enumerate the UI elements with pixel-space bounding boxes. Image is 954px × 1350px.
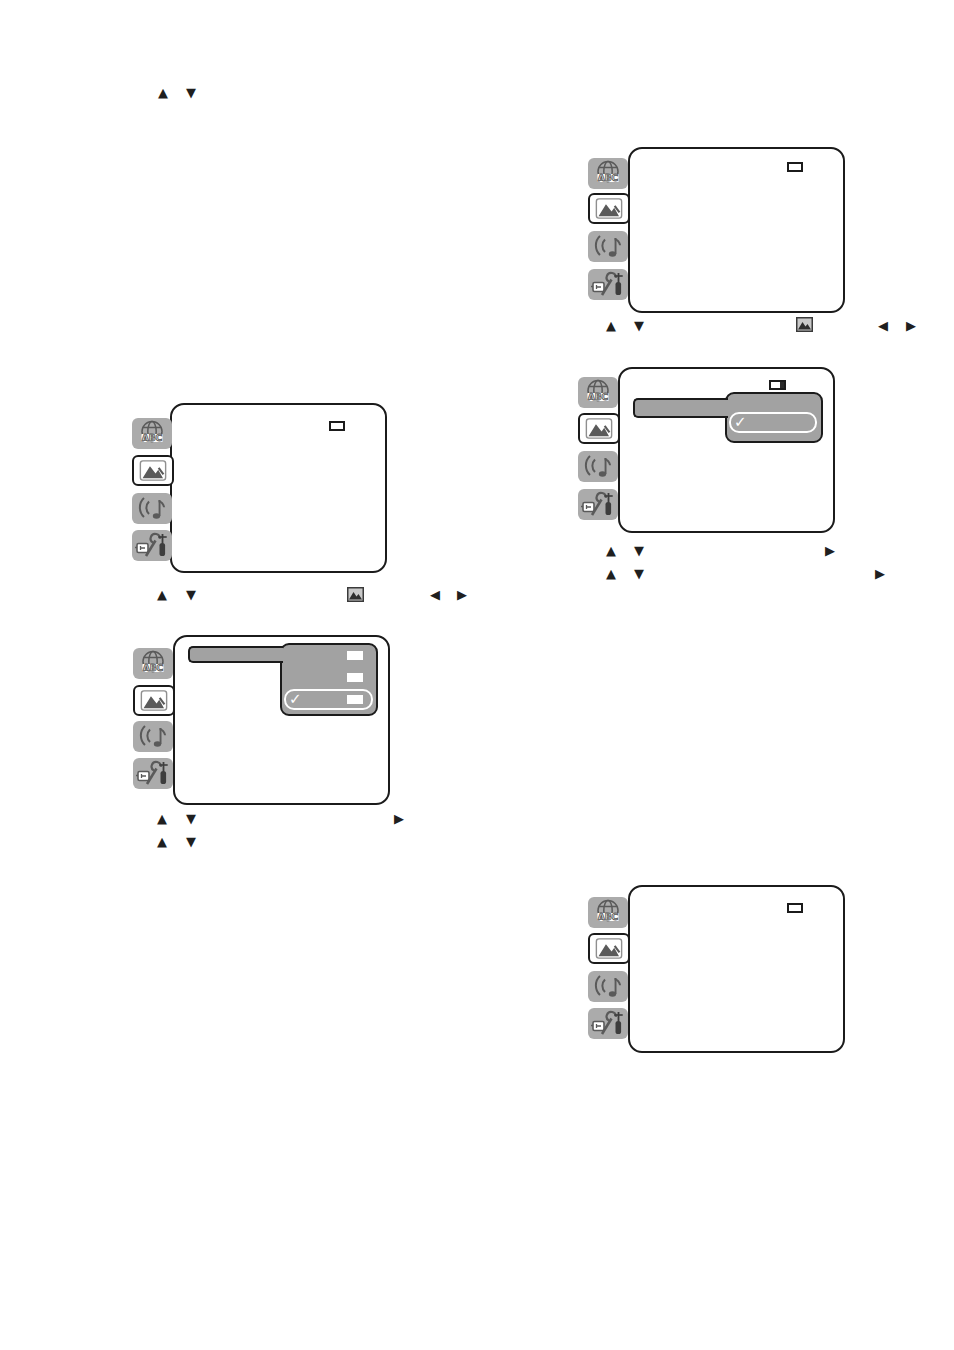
picture-icon (134, 457, 172, 484)
up-arrow-key-icon: ▲ (157, 835, 167, 848)
osd-menu-figure-left-middle: ✓ (133, 635, 393, 809)
up-arrow-key-icon: ▲ (157, 812, 167, 825)
setup-icon (133, 758, 173, 789)
menu-panel (628, 147, 845, 313)
up-arrow-key-icon: ▲ (158, 86, 168, 99)
tab-sound (133, 721, 173, 752)
language-icon (132, 418, 172, 449)
right-arrow-key-icon: ▶ (457, 588, 467, 601)
tab-picture-selected (133, 685, 175, 716)
checkmark-icon: ✓ (734, 415, 747, 430)
up-arrow-key-icon: ▲ (606, 567, 616, 580)
left-arrow-key-icon: ◀ (430, 588, 440, 601)
submenu-option-box (347, 673, 363, 682)
setup-icon (578, 489, 618, 520)
tab-setup (588, 269, 628, 300)
tab-picture-selected (588, 933, 630, 964)
language-icon (588, 158, 628, 189)
tab-setup (588, 1008, 628, 1039)
picture-icon (590, 195, 628, 222)
down-arrow-key-icon: ▼ (634, 544, 644, 557)
menu-indicator (329, 421, 345, 431)
osd-menu-figure-right-middle: ✓ (578, 367, 838, 537)
picture-icon (580, 415, 618, 442)
language-icon (578, 377, 618, 408)
menu-indicator (787, 903, 803, 913)
tab-setup (132, 530, 172, 561)
tab-sound (588, 971, 628, 1002)
tab-language (133, 648, 173, 679)
tab-language (578, 377, 618, 408)
highlighted-menu-row (188, 646, 283, 663)
left-arrow-key-icon: ◀ (878, 319, 888, 332)
tab-language (132, 418, 172, 449)
up-arrow-key-icon: ▲ (606, 544, 616, 557)
sound-icon (588, 971, 628, 1002)
picture-icon (135, 687, 173, 714)
sound-icon (588, 231, 628, 262)
up-arrow-key-icon: ▲ (157, 588, 167, 601)
tab-picture-selected (578, 413, 620, 444)
down-arrow-key-icon: ▼ (186, 588, 196, 601)
menu-indicator-partial (769, 380, 786, 390)
menu-indicator (787, 162, 803, 172)
indicator-fill (780, 382, 784, 388)
submenu-option-box (347, 651, 363, 660)
right-arrow-key-icon: ▶ (394, 812, 404, 825)
language-icon (133, 648, 173, 679)
tab-sound (132, 493, 172, 524)
tab-setup (133, 758, 173, 789)
tab-setup (578, 489, 618, 520)
picture-menu-icon (347, 587, 364, 602)
tab-language (588, 158, 628, 189)
submenu-option-box (347, 695, 363, 704)
setup-icon (588, 1008, 628, 1039)
sound-icon (578, 451, 618, 482)
up-arrow-key-icon: ▲ (606, 319, 616, 332)
osd-menu-figure-top-right (588, 147, 848, 317)
tab-picture-selected (588, 193, 630, 224)
tab-sound (588, 231, 628, 262)
tab-picture-selected (132, 455, 174, 486)
picture-icon (590, 935, 628, 962)
osd-menu-figure-left-top (132, 403, 392, 577)
right-arrow-key-icon: ▶ (906, 319, 916, 332)
down-arrow-key-icon: ▼ (634, 567, 644, 580)
manual-page: ▲ ▼ ▲ ▼ ◀ ▶ ✓ ▲ ▼ ▶ ▲ ▼ ▶ (0, 0, 954, 1350)
down-arrow-key-icon: ▼ (186, 86, 196, 99)
sound-icon (133, 721, 173, 752)
setup-icon (132, 530, 172, 561)
tab-language (588, 897, 628, 928)
picture-menu-icon (796, 317, 813, 332)
tab-sound (578, 451, 618, 482)
menu-panel (170, 403, 387, 573)
down-arrow-key-icon: ▼ (186, 835, 196, 848)
menu-panel (628, 885, 845, 1053)
checkmark-icon: ✓ (289, 692, 302, 707)
sound-icon (132, 493, 172, 524)
down-arrow-key-icon: ▼ (634, 319, 644, 332)
down-arrow-key-icon: ▼ (186, 812, 196, 825)
right-arrow-key-icon: ▶ (875, 567, 885, 580)
highlighted-menu-row (633, 398, 728, 418)
language-icon (588, 897, 628, 928)
osd-menu-figure-bottom-right (588, 885, 848, 1057)
setup-icon (588, 269, 628, 300)
right-arrow-key-icon: ▶ (825, 544, 835, 557)
